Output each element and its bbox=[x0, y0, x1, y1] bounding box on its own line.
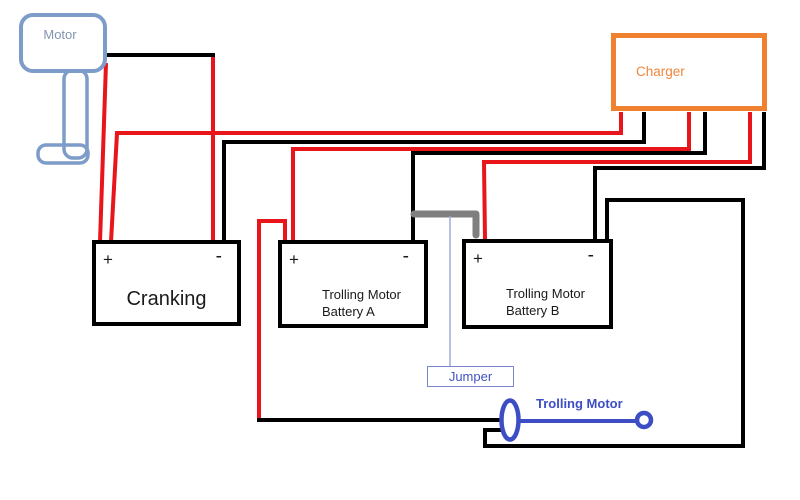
motor-label: Motor bbox=[23, 27, 97, 42]
trolling-motor-head-ellipse bbox=[502, 401, 519, 440]
wire-motor-positive-to-cranking bbox=[100, 63, 106, 242]
battery-a-label: Trolling Motor Battery A bbox=[322, 286, 401, 320]
jumper-label-box: Jumper bbox=[427, 366, 514, 387]
cranking-label: Cranking bbox=[96, 288, 237, 311]
cranking-negative-terminal: - bbox=[216, 247, 222, 266]
battery-a-negative-terminal: - bbox=[403, 247, 409, 266]
jumper-label: Jumper bbox=[428, 369, 513, 384]
battery-a-positive-terminal: + bbox=[289, 251, 299, 268]
charger-box: Charger bbox=[611, 33, 767, 111]
battery-b-box: + - Trolling Motor Battery B bbox=[462, 239, 613, 329]
wiring-diagram: Motor Charger + - Cranking + - Trolling … bbox=[0, 0, 800, 500]
jumper-wire bbox=[414, 214, 476, 235]
wire-cranking-positive-to-charger bbox=[111, 112, 621, 242]
trolling-motor-prop-circle bbox=[637, 413, 651, 427]
battery-b-label: Trolling Motor Battery B bbox=[506, 285, 585, 319]
cranking-battery-box: + - Cranking bbox=[92, 240, 241, 326]
trolling-motor-label: Trolling Motor bbox=[536, 396, 623, 411]
battery-a-box: + - Trolling Motor Battery A bbox=[278, 240, 428, 328]
cranking-positive-terminal: + bbox=[103, 251, 113, 268]
charger-label: Charger bbox=[636, 64, 685, 79]
battery-b-positive-terminal: + bbox=[473, 250, 483, 267]
battery-b-negative-terminal: - bbox=[588, 246, 594, 265]
motor-box: Motor bbox=[19, 13, 107, 73]
